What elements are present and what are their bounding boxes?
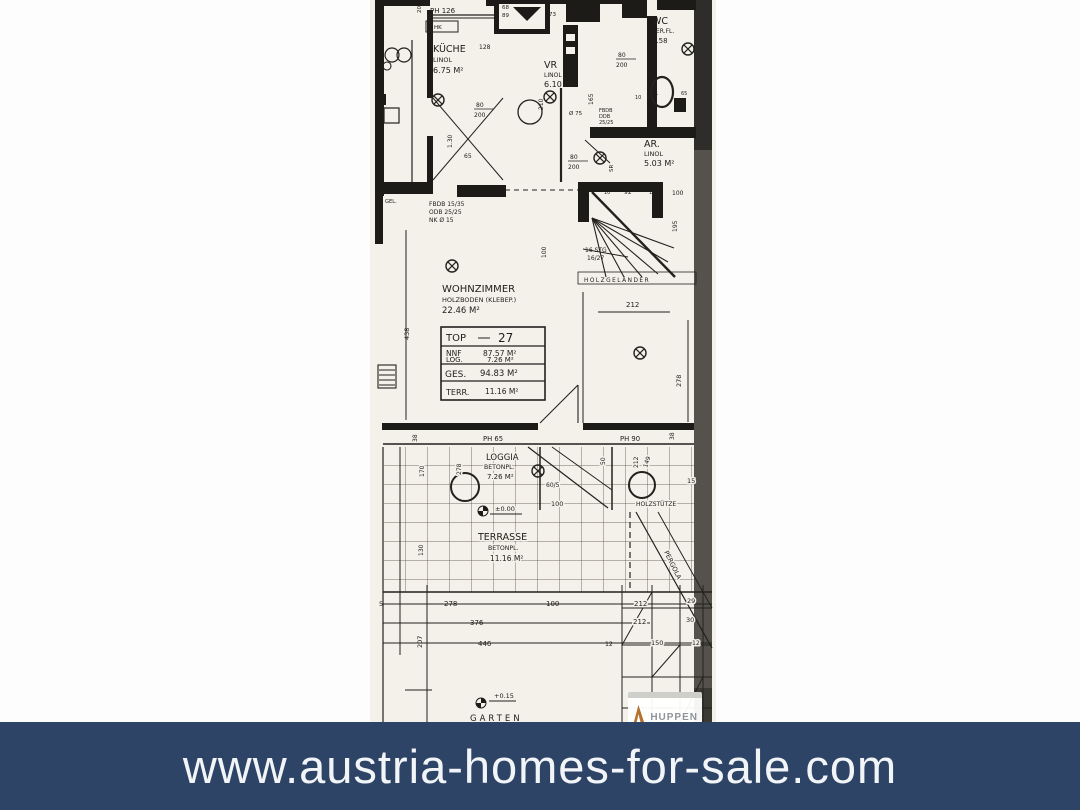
watermark-text: HUPPEN <box>650 712 698 723</box>
dim-15: 15 <box>687 477 695 485</box>
dim-210: 210 <box>538 98 545 110</box>
door-80c: 80 <box>570 154 578 161</box>
dim-ph90: PH 90 <box>620 435 640 443</box>
dim-73: 73 <box>549 12 556 18</box>
dim-130m: 1.30 <box>447 134 454 148</box>
infobox-log-label: LOG. <box>446 356 463 364</box>
dim-89: 89 <box>502 13 509 19</box>
dim-100b: 100 <box>551 500 563 508</box>
note-sr: SR <box>609 165 615 172</box>
infobox-ges-value: 94.83 M² <box>480 369 518 379</box>
infobox-top-value: 27 <box>498 331 513 345</box>
room-vr-floor: LINOL <box>544 72 562 79</box>
dim-ph65: PH 65 <box>483 435 503 443</box>
dim-278b: 278 <box>444 600 457 608</box>
walls-layer <box>375 0 696 430</box>
dim-10: 10 <box>635 95 641 101</box>
room-vr-area: 6.10 M² <box>544 80 574 89</box>
dim-278v: 278 <box>456 463 463 475</box>
room-ar-floor: LINOL <box>644 150 664 158</box>
door-200b: 200 <box>616 62 628 69</box>
room-kueche-floor: LINOL <box>433 56 453 64</box>
dim-165: 165 <box>588 93 595 105</box>
dim-10c: 10 <box>649 190 655 196</box>
dim-100v: 100 <box>541 246 548 258</box>
dim-128: 128 <box>479 44 491 51</box>
level-zero: ±0.00 <box>495 505 515 513</box>
dim-60-5: 60/5 <box>546 482 560 489</box>
note-fbdb: FBDB 15/35 <box>429 201 465 208</box>
website-url: www.austria-homes-for-sale.com <box>183 739 897 794</box>
stairs-steps: 16 STG <box>585 247 607 254</box>
dim-65b: 65 <box>681 91 687 97</box>
dim-92: 92 <box>624 189 632 196</box>
room-vr-name: VR <box>544 60 557 71</box>
level-garden: +0.15 <box>494 692 514 700</box>
room-kueche-area: 6.75 M² <box>433 66 463 75</box>
dim-20: 20 <box>417 6 423 13</box>
room-wohnzimmer-name: WOHNZIMMER <box>442 284 515 295</box>
room-loggia-name: LOGGIA <box>486 453 519 463</box>
floorplan-drawing: PH 126 20 HK 68 89 73 KÜCHE LINOL 6.75 M… <box>0 0 1080 722</box>
dim-446: 446 <box>478 640 492 648</box>
infobox-terr-value: 11.16 M² <box>485 387 518 396</box>
room-loggia-area: 7.26 M² <box>487 473 514 481</box>
dim-38: 38 <box>412 434 419 442</box>
dim-212: 212 <box>626 301 639 309</box>
room-terrasse-floor: BETONPL. <box>488 545 519 552</box>
room-terrasse-area: 11.16 M² <box>490 554 523 563</box>
door-80: 80 <box>476 102 484 109</box>
dim-38b: 38 <box>669 432 676 440</box>
room-wc-floor: KER.FL. <box>652 28 674 35</box>
stairs-railing: HOLZGELÄNDER <box>584 277 650 284</box>
dim-376: 376 <box>470 619 484 627</box>
room-kueche-name: KÜCHE <box>433 44 466 55</box>
dim-100: 100 <box>672 190 684 197</box>
dim-31: 31 <box>652 91 658 97</box>
room-ar-area: 5.03 M² <box>644 159 674 168</box>
dim-195: 195 <box>672 220 679 232</box>
dim-ph126: PH 126 <box>430 7 456 15</box>
dim-55: 55 <box>654 204 661 212</box>
dim-149: 149 <box>642 455 652 468</box>
note-2525: 25/25 <box>599 120 613 126</box>
room-wc-area: 1.58 <box>652 37 668 45</box>
dim-100c: 100 <box>546 600 559 608</box>
note-dia75: Ø 75 <box>569 110 583 117</box>
room-ar-name: AR. <box>644 139 660 150</box>
dim-170: 170 <box>419 465 426 477</box>
infobox-ges-label: GES. <box>445 370 466 380</box>
dim-5: 5 <box>379 600 383 608</box>
room-loggia-floor: BETONPL. <box>484 464 515 471</box>
note-nk: NK Ø 15 <box>429 217 454 224</box>
infobox-log-value: 7.26 M² <box>487 356 514 364</box>
dim-130: 130 <box>418 544 425 556</box>
dim-212c: 212 <box>634 600 647 608</box>
infobox-terr-label: TERR. <box>445 388 469 397</box>
listing-image: PH 126 20 HK 68 89 73 KÜCHE LINOL 6.75 M… <box>0 0 1080 810</box>
room-wohnzimmer-area: 22.46 M² <box>442 306 480 316</box>
dim-207: 207 <box>416 636 424 648</box>
dim-12b: 12 <box>692 640 700 647</box>
room-garten-name: GARTEN <box>470 714 523 722</box>
dim-30: 30 <box>686 616 694 624</box>
stairs <box>578 192 696 284</box>
dim-65: 65 <box>464 153 472 160</box>
note-odb: ODB 25/25 <box>429 209 462 216</box>
dim-68: 68 <box>502 5 509 11</box>
stairs-ratio: 16/27 <box>587 255 604 262</box>
infobox-top-label: TOP <box>445 333 466 344</box>
room-wohnzimmer-floor: HOLZBODEN (KLEBEP.) <box>442 296 516 304</box>
dim-212d: 212 <box>633 618 646 626</box>
dim-10b: 10 <box>604 190 610 196</box>
website-banner: www.austria-homes-for-sale.com <box>0 722 1080 810</box>
room-terrasse-name: TERRASSE <box>477 532 527 543</box>
dim-150: 150 <box>651 639 663 647</box>
door-200c: 200 <box>568 164 580 171</box>
dim-12: 12 <box>605 641 613 648</box>
dim-278r: 278 <box>675 375 683 387</box>
note-gel: GEL. <box>385 199 397 205</box>
door-80b: 80 <box>618 52 626 59</box>
dim-50: 50 <box>600 457 607 465</box>
dim-29: 29 <box>687 597 695 605</box>
radiator-label: HK <box>434 25 442 31</box>
room-wc-name: WC <box>652 16 668 27</box>
dim-212v: 212 <box>633 456 640 468</box>
note-holzstuetze: HOLZSTÜTZE <box>636 501 676 508</box>
dim-438: 438 <box>403 328 411 340</box>
door-200: 200 <box>474 112 486 119</box>
